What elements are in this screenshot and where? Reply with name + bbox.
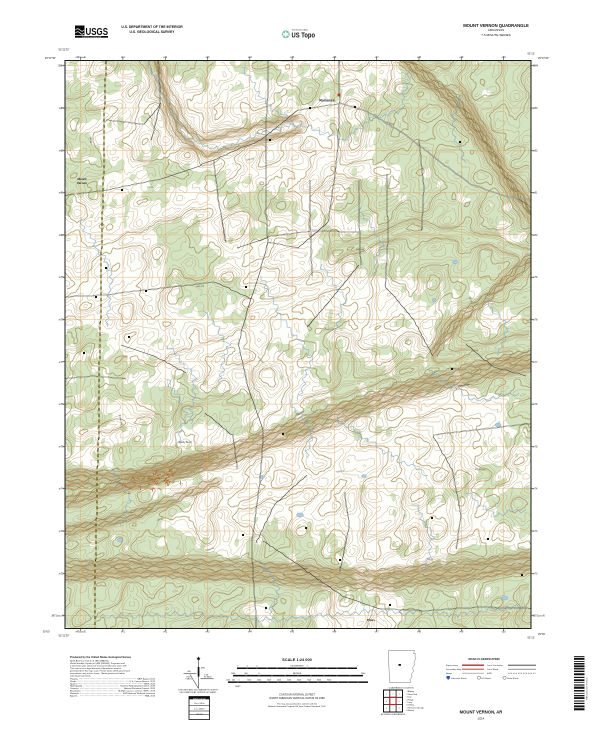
svg-text:92°22'30": 92°22'30" xyxy=(58,48,69,52)
svg-text:METERS: METERS xyxy=(293,673,302,675)
svg-text:Interstate Route: Interstate Route xyxy=(451,677,467,680)
svg-text:7000: 7000 xyxy=(307,680,311,682)
svg-text:35°00': 35°00' xyxy=(43,630,51,634)
svg-text:648: 648 xyxy=(417,56,421,59)
svg-text:This map was produced to confo: This map was produced to conform with th… xyxy=(277,703,318,706)
svg-text:650: 650 xyxy=(502,56,506,59)
svg-text:4WD: 4WD xyxy=(487,673,492,675)
svg-text:35°07'30": 35°07'30" xyxy=(538,56,549,60)
svg-text:3874: 3874 xyxy=(59,488,64,491)
svg-text:647: 647 xyxy=(375,56,379,59)
svg-text:U.S. DEPARTMENT OF THE INTERIO: U.S. DEPARTMENT OF THE INTERIOR xyxy=(121,25,183,29)
svg-text:4000: 4000 xyxy=(277,680,281,682)
svg-text:3871000mN: 3871000mN xyxy=(533,615,545,618)
svg-text:US Route: US Route xyxy=(482,677,492,680)
svg-text:35°00': 35°00' xyxy=(538,632,546,636)
svg-text:3882: 3882 xyxy=(533,149,538,152)
svg-text:6 Vilonia: 6 Vilonia xyxy=(407,705,416,707)
svg-text:648: 648 xyxy=(417,631,421,634)
svg-text:FEET: FEET xyxy=(235,686,241,688)
svg-text:3875: 3875 xyxy=(533,445,538,448)
svg-text:Holly Rd: Holly Rd xyxy=(196,286,205,288)
svg-text:3876: 3876 xyxy=(59,403,64,406)
svg-text:ARKANSAS: ARKANSAS xyxy=(488,28,504,32)
svg-text:5000: 5000 xyxy=(287,680,291,682)
svg-text:2 Rose Bud: 2 Rose Bud xyxy=(407,694,417,696)
svg-text:92°15': 92°15' xyxy=(527,52,535,56)
svg-text:31 MILS: 31 MILS xyxy=(204,677,212,679)
svg-text:Local Connector: Local Connector xyxy=(487,664,503,667)
svg-text:647: 647 xyxy=(375,631,379,634)
svg-text:2000: 2000 xyxy=(257,680,261,682)
svg-text:4 Floyd: 4 Floyd xyxy=(407,699,414,701)
svg-text:640000mE: 640000mE xyxy=(75,631,86,634)
svg-text:3879: 3879 xyxy=(533,276,538,279)
svg-text:3871000mN: 3871000mN xyxy=(51,615,63,618)
svg-text:3877: 3877 xyxy=(533,361,538,364)
svg-text:7 Romance Springs: 7 Romance Springs xyxy=(407,707,425,709)
svg-text:3881: 3881 xyxy=(533,192,538,195)
svg-text:3872: 3872 xyxy=(59,572,64,575)
svg-text:Holly Rd: Holly Rd xyxy=(356,249,365,251)
svg-text:3875: 3875 xyxy=(59,445,64,448)
svg-text:SCALE 1:24 000: SCALE 1:24 000 xyxy=(282,657,312,662)
svg-text:3881: 3881 xyxy=(59,192,64,195)
svg-text:3878: 3878 xyxy=(533,319,538,322)
svg-text:ISBN 978-0-607-97244-8: ISBN 978-0-607-97244-8 xyxy=(587,677,589,700)
svg-text:3876: 3876 xyxy=(533,403,538,406)
svg-text:MOUNT VERNON, AR: MOUNT VERNON, AR xyxy=(460,710,503,715)
svg-text:3873: 3873 xyxy=(533,530,538,533)
svg-text:Vernon: Vernon xyxy=(77,181,87,185)
svg-text:9000: 9000 xyxy=(327,680,331,682)
svg-text:UTM GRID AND 2014 MAGNETIC NOR: UTM GRID AND 2014 MAGNETIC NORTH xyxy=(178,689,218,692)
svg-text:entering private lands.: entering private lands. xyxy=(70,674,91,677)
svg-text:3883: 3883 xyxy=(59,107,64,110)
svg-text:Romance: Romance xyxy=(319,99,334,103)
svg-text:1000: 1000 xyxy=(247,680,251,682)
svg-text:5 Guy: 5 Guy xyxy=(407,702,412,704)
svg-text:9 MILS: 9 MILS xyxy=(185,679,192,681)
svg-text:3879: 3879 xyxy=(59,276,64,279)
svg-text:3884: 3884 xyxy=(58,65,64,68)
svg-text:3000: 3000 xyxy=(267,680,271,682)
svg-text:8 Beebe: 8 Beebe xyxy=(407,710,415,712)
svg-text:3883: 3883 xyxy=(533,107,538,110)
svg-text:1 in = 2000 ft: 1 in = 2000 ft xyxy=(194,707,205,710)
svg-text:1 Albany: 1 Albany xyxy=(407,690,415,693)
svg-text:State Route: State Route xyxy=(507,677,519,680)
svg-text:500: 500 xyxy=(232,680,235,682)
svg-text:92°15': 92°15' xyxy=(527,636,535,640)
svg-text:649: 649 xyxy=(459,56,463,59)
svg-text:2014: 2014 xyxy=(478,717,485,721)
svg-text:3882: 3882 xyxy=(59,149,64,152)
svg-text:FAA, 2013: FAA, 2013 xyxy=(145,695,156,698)
svg-text:645: 645 xyxy=(290,56,294,59)
svg-text:641: 641 xyxy=(121,56,125,59)
svg-text:642: 642 xyxy=(163,56,167,59)
svg-text:GN: GN xyxy=(187,671,191,673)
svg-text:ADJOINING QUADRANGLES: ADJOINING QUADRANGLES xyxy=(381,713,406,716)
svg-text:649: 649 xyxy=(459,631,463,634)
svg-text:MN: MN xyxy=(201,667,205,669)
svg-text:35°07'30": 35°07'30" xyxy=(45,56,56,60)
svg-text:3878: 3878 xyxy=(59,319,64,322)
svg-text:Airports: Airports xyxy=(70,695,77,698)
svg-text:646: 646 xyxy=(332,56,336,59)
svg-text:3 Joy: 3 Joy xyxy=(407,697,412,699)
svg-text:644: 644 xyxy=(248,631,252,634)
svg-text:6000: 6000 xyxy=(297,680,301,682)
svg-text:Secondary Hwy: Secondary Hwy xyxy=(446,668,462,671)
svg-text:Sandy Bend: Sandy Bend xyxy=(178,441,192,444)
svg-text:642: 642 xyxy=(163,631,167,634)
svg-text:3880: 3880 xyxy=(59,234,64,237)
svg-text:Expressway: Expressway xyxy=(446,664,459,667)
svg-text:3884: 3884 xyxy=(533,65,539,68)
svg-text:KILOMETERS: KILOMETERS xyxy=(291,666,305,668)
svg-text:3874: 3874 xyxy=(533,488,538,491)
svg-text:3880: 3880 xyxy=(533,234,538,237)
svg-text:DECLINATION AT CENTER OF SHEET: DECLINATION AT CENTER OF SHEET xyxy=(180,691,218,694)
svg-text:1:24 000: 1:24 000 xyxy=(196,714,203,716)
svg-text:QUADRANGLE LOCATION: QUADRANGLE LOCATION xyxy=(389,686,414,689)
svg-text:National Geospatial Program US: National Geospatial Program US Topo Prod… xyxy=(268,705,327,708)
svg-text:650: 650 xyxy=(502,631,506,634)
svg-text:646: 646 xyxy=(332,631,336,634)
svg-text:7.5-MINUTE SERIES: 7.5-MINUTE SERIES xyxy=(481,33,510,37)
svg-text:NORTH AMERICAN VERTICAL DATUM: NORTH AMERICAN VERTICAL DATUM OF 1988 xyxy=(269,697,325,700)
svg-text:1000: 1000 xyxy=(226,680,230,682)
svg-text:U.S. GEOLOGICAL SURVEY: U.S. GEOLOGICAL SURVEY xyxy=(129,30,175,34)
svg-text:US Topo: US Topo xyxy=(292,31,316,40)
svg-text:0: 0 xyxy=(239,680,240,682)
svg-text:3872: 3872 xyxy=(533,572,538,575)
svg-text:645: 645 xyxy=(290,631,294,634)
svg-text:92°22'30": 92°22'30" xyxy=(58,634,69,638)
svg-text:Pines: Pines xyxy=(367,618,375,622)
svg-text:ROAD CLASSIFICATION: ROAD CLASSIFICATION xyxy=(468,657,499,661)
svg-text:Produced by the United States: Produced by the United States Geological… xyxy=(70,655,132,659)
svg-text:1 cm = 240 m: 1 cm = 240 m xyxy=(194,703,205,705)
svg-text:643: 643 xyxy=(206,56,210,59)
svg-text:643: 643 xyxy=(206,631,210,634)
svg-text:Local Road: Local Road xyxy=(487,669,499,671)
svg-text:3873: 3873 xyxy=(59,530,64,533)
svg-text:SCALE 1:24 000: SCALE 1:24 000 xyxy=(193,697,206,700)
svg-text:3877: 3877 xyxy=(59,361,64,364)
svg-text:644: 644 xyxy=(248,56,252,59)
svg-text:Ramp: Ramp xyxy=(446,673,453,675)
svg-text:8000: 8000 xyxy=(317,680,321,682)
svg-text:641: 641 xyxy=(121,631,125,634)
